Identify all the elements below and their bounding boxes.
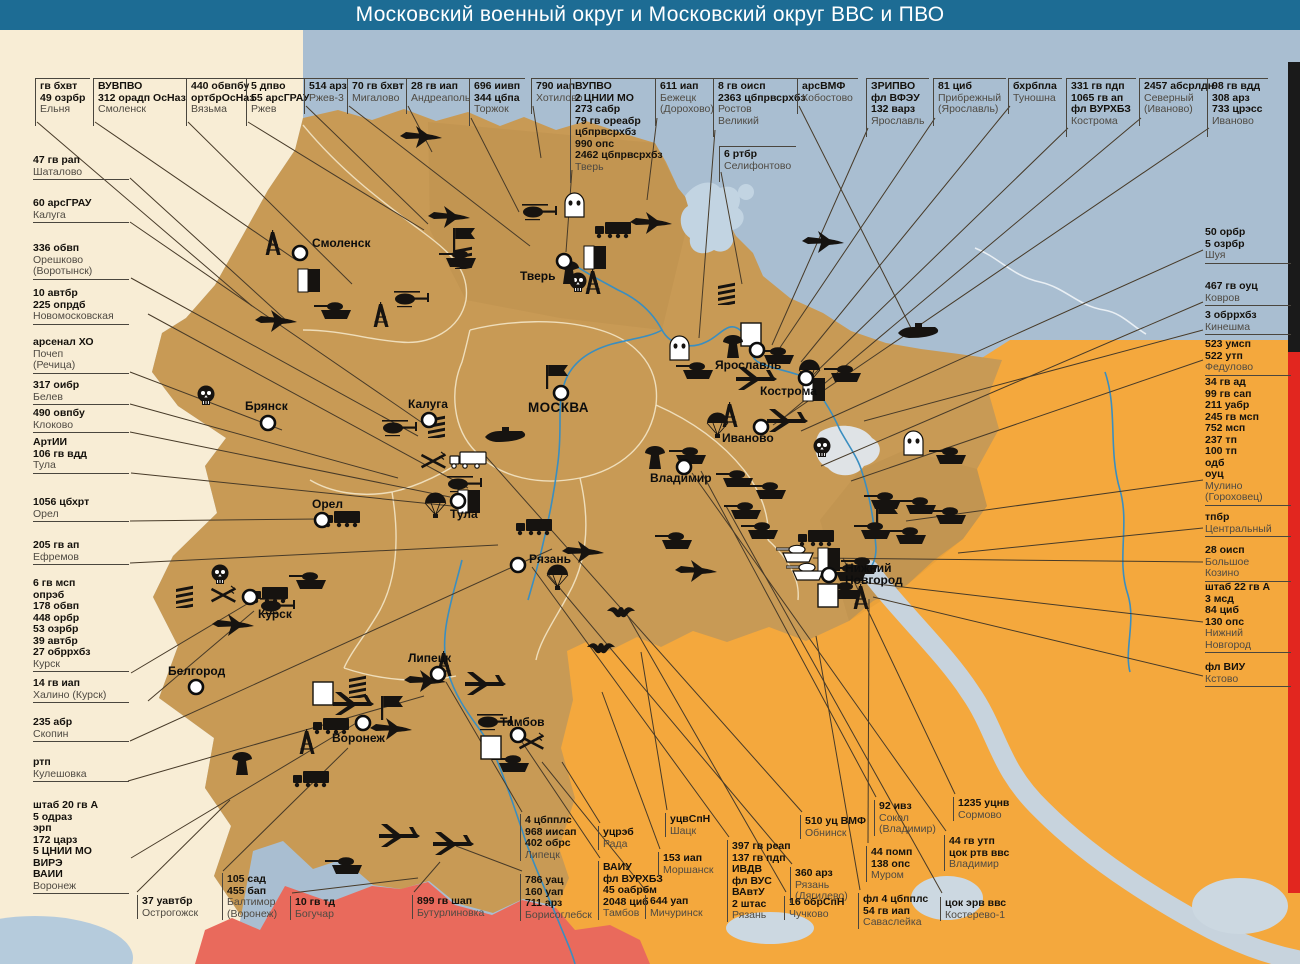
hood-icon xyxy=(565,193,584,217)
city-marker xyxy=(315,513,329,527)
city-marker xyxy=(799,371,813,385)
city-marker xyxy=(189,680,203,694)
city-label: Тверь xyxy=(520,269,555,283)
city-label: Владимир xyxy=(650,471,712,485)
hood-icon xyxy=(904,431,923,455)
wbox-icon xyxy=(481,736,501,759)
city-label: Кострома xyxy=(760,384,817,398)
wbox-icon xyxy=(313,682,333,705)
city-label: Смоленск xyxy=(312,236,371,250)
lake xyxy=(911,876,983,920)
bldg-icon xyxy=(298,269,320,292)
bldg-icon xyxy=(584,246,606,269)
city-marker xyxy=(557,254,571,268)
city-label: Тула xyxy=(450,507,478,521)
city-label: Белгород xyxy=(168,664,226,678)
east-red-edge xyxy=(1288,352,1300,893)
east-black-edge xyxy=(1288,62,1300,352)
city-marker xyxy=(822,568,836,582)
map-title: Московский военный округ и Московский ок… xyxy=(356,3,945,26)
city-marker xyxy=(451,494,465,508)
city-marker xyxy=(293,246,307,260)
city-label: МОСКВА xyxy=(528,400,589,415)
city-marker xyxy=(422,413,436,427)
city-label: Иваново xyxy=(722,431,774,445)
map-canvas: СмоленскТверьМОСКВАБрянскКалугаОрелТулаР… xyxy=(0,0,1300,964)
wbox-icon xyxy=(818,584,838,607)
city-label: Тамбов xyxy=(500,715,545,729)
city-marker xyxy=(511,558,525,572)
map-infographic: Московский военный округ и Московский ок… xyxy=(0,0,1300,964)
city-marker xyxy=(511,728,525,742)
lake xyxy=(1192,878,1288,934)
city-marker xyxy=(750,343,764,357)
city-label: Воронеж xyxy=(332,731,385,745)
city-marker xyxy=(431,667,445,681)
city-label: Брянск xyxy=(245,399,289,413)
city-label: Липецк xyxy=(408,651,452,665)
city-label: Орел xyxy=(312,497,343,511)
city-label: Рязань xyxy=(529,552,571,566)
city-marker xyxy=(261,416,275,430)
city-label: Калуга xyxy=(408,397,448,411)
city-label: Ярославль xyxy=(715,358,781,372)
lake xyxy=(726,912,814,944)
hood-icon xyxy=(670,336,689,360)
city-label: Курск xyxy=(258,607,293,621)
lake xyxy=(738,184,754,200)
city-marker xyxy=(243,590,257,604)
city-marker xyxy=(356,716,370,730)
title-bar: Московский военный округ и Московский ок… xyxy=(0,0,1300,30)
city-marker xyxy=(554,386,568,400)
